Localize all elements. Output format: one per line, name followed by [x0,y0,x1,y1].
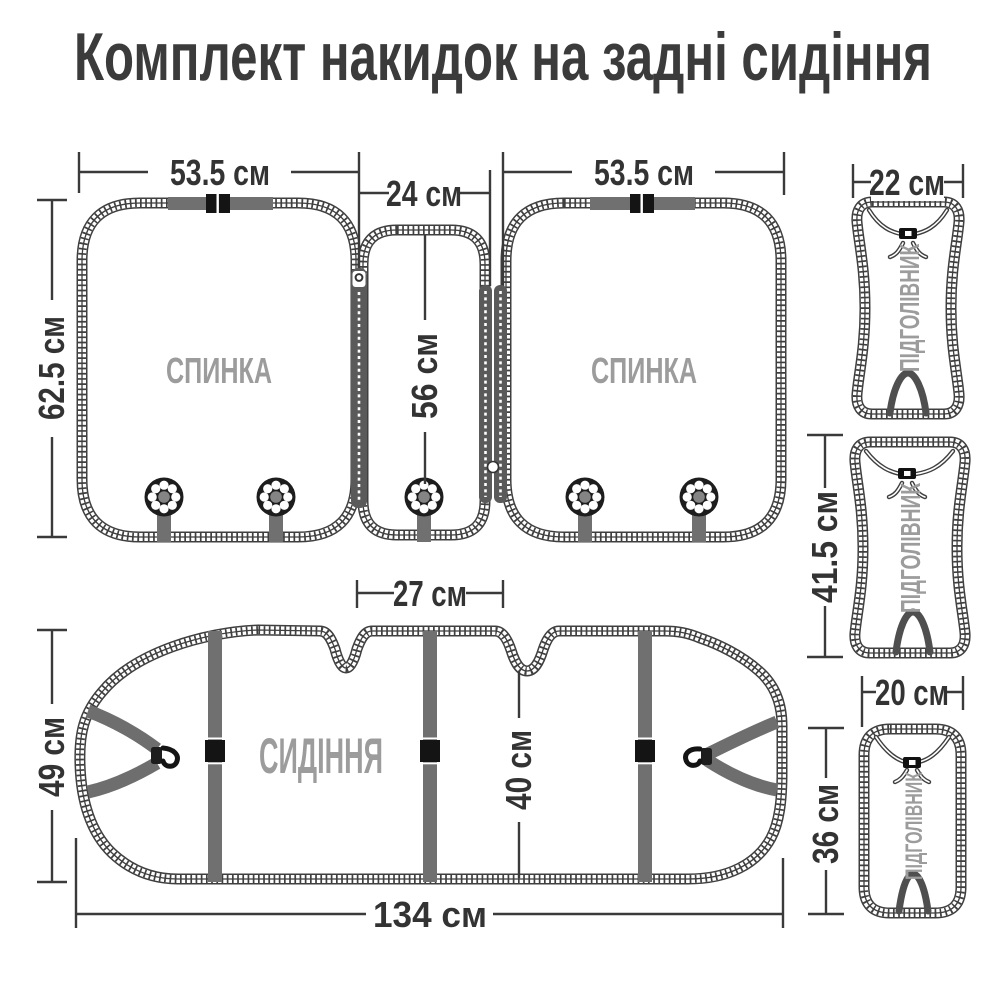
headrest-middle: ПІДГОЛІВНИК [855,442,965,653]
seat-cover: СИДІННЯ [80,630,782,882]
seat-strap [205,631,225,882]
diagram-page: Комплект накидок на задні сидіння СПИНКА [0,0,1001,1001]
dim-backrest-left-height: 62.5 см [31,316,72,420]
dim-seat-height: 49 см [31,717,72,797]
dim-middle-height: 56 см [404,333,445,419]
seat-strap [420,631,440,882]
dim-seat-belt-gap: 27 см [393,573,467,614]
backrest-left: СПИНКА [82,194,356,542]
zipper-pull [488,462,499,473]
backrest-right: СПИНКА [506,194,781,542]
headrest-bottom-label: ПІДГОЛІВНИК [901,772,928,880]
seat-label: СИДІННЯ [259,728,383,784]
dim-headrest-middle-height: 41.5 см [804,491,845,603]
dim-seat-width: 134 см [373,894,487,935]
page-title: Комплект накидок на задні сидіння [74,19,932,95]
dim-headrest-bottom-height: 36 см [805,784,846,864]
zipper-left [351,268,367,508]
seat-strap [635,631,655,882]
seat-covers-diagram: Комплект накидок на задні сидіння СПИНКА [0,0,1001,1001]
dim-backrest-right-width: 53.5 см [594,152,694,193]
zipper-right-double [479,285,507,503]
dim-headrest-bottom-width: 20 см [875,672,949,713]
dim-seat-depth: 40 см [498,730,539,810]
dim-middle-width: 24 см [386,173,462,214]
headrest-top-label: ПІДГОЛІВНИК [894,243,925,372]
headrest-top: ПІДГОЛІВНИК [857,202,959,414]
headrest-bottom: ПІДГОЛІВНИК [864,729,961,913]
backrest-left-label: СПИНКА [166,350,272,391]
headrest-middle-label: ПІДГОЛІВНИК [895,482,926,613]
dim-headrest-top-width: 22 см [869,162,945,203]
backrest-right-label: СПИНКА [591,350,697,391]
dim-backrest-left-width: 53.5 см [170,152,270,193]
